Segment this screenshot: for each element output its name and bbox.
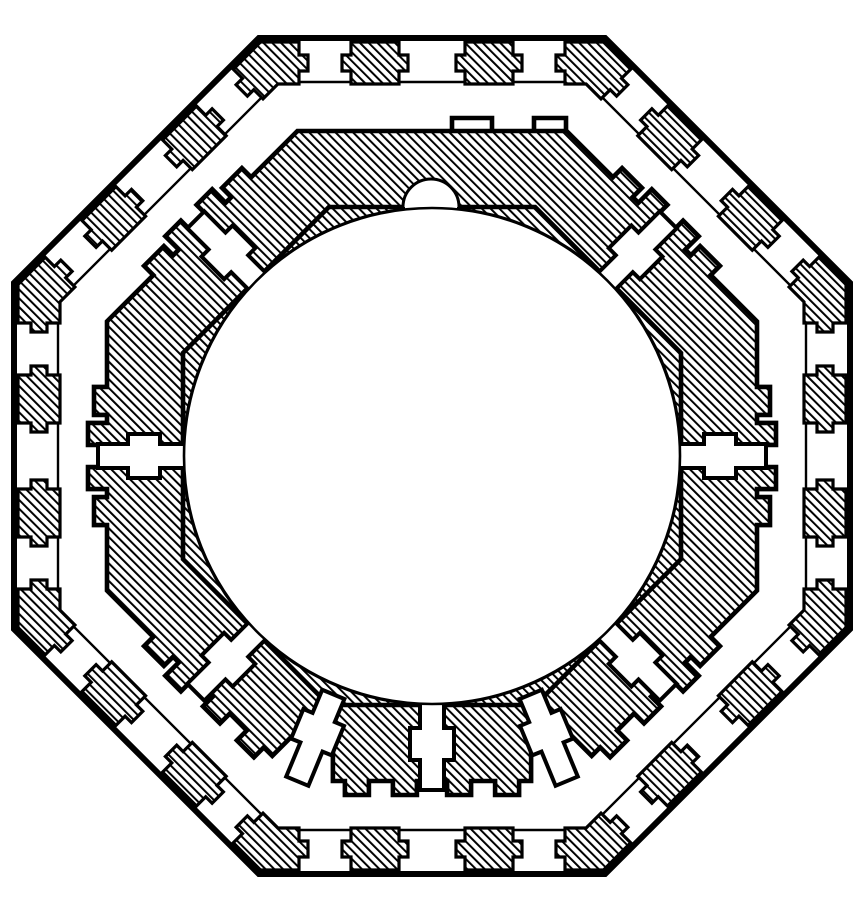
wall-pilaster-block — [804, 366, 846, 432]
central-circle — [184, 208, 680, 704]
figure: Engraved plan of an octagonal masonry to… — [0, 0, 865, 899]
wall-pilaster-block — [456, 828, 522, 870]
plan-svg — [0, 0, 865, 899]
wall-pilaster-block — [804, 480, 846, 546]
plan-drawing — [0, 0, 865, 899]
wall-pilaster-block — [342, 828, 408, 870]
wall-pilaster-block — [18, 480, 60, 546]
wall-pilaster-block — [456, 42, 522, 84]
wall-pilaster-block — [18, 366, 60, 432]
wall-pilaster-block — [342, 42, 408, 84]
